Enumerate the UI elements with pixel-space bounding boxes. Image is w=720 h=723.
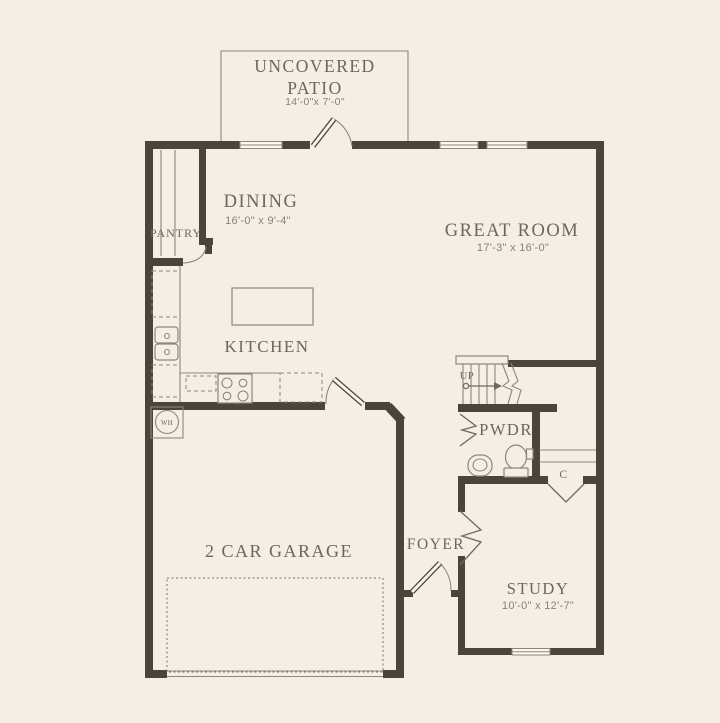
stove: [218, 374, 252, 403]
closet-shelves: [539, 450, 596, 462]
pantry-shelves: [161, 150, 175, 256]
pantry-door: [183, 247, 206, 263]
upper-cabinet: [186, 376, 216, 391]
water-heater-label: WH: [161, 420, 173, 427]
upper-cabinet: [152, 271, 180, 317]
patio-door: [313, 119, 352, 146]
refrigerator-space: [280, 373, 322, 402]
foyer-label: FOYER: [407, 536, 465, 553]
study-label: STUDY: [507, 579, 570, 598]
floor-plan: WH UNCOVERED PATIO 14'-0"x 7'-0" DINING …: [0, 0, 720, 723]
pantry-label: PANTRY: [150, 226, 202, 240]
kitchen-garage-door: [326, 379, 363, 404]
great-room-label: GREAT ROOM: [445, 221, 579, 241]
front-entry-door: [412, 563, 451, 592]
stair-handrail: [456, 356, 508, 364]
powder-sink: [468, 455, 492, 476]
great-room-dimensions: 17'-3" x 16'-0": [477, 242, 549, 254]
dining-window: [240, 142, 282, 149]
great-room-window-left: [440, 142, 478, 149]
study-window: [512, 649, 550, 656]
powder-room-opening-symbol: [460, 414, 476, 446]
closet-bifold-door: [548, 484, 584, 502]
dining-label: DINING: [224, 192, 299, 212]
toilet: [504, 445, 533, 477]
stair-break-line: [502, 363, 521, 404]
powder-room-label: PWDR: [479, 420, 533, 439]
stair-direction-arrow: [463, 382, 502, 390]
garage-door-clearance: [167, 578, 383, 672]
closet-label: C: [559, 469, 568, 481]
floor-plan-drawing: WH UNCOVERED PATIO 14'-0"x 7'-0" DINING …: [0, 0, 720, 723]
kitchen-fixtures: [152, 266, 322, 403]
labels: UNCOVERED PATIO 14'-0"x 7'-0" DINING 16'…: [150, 56, 579, 612]
dining-dimensions: 16'-0" x 9'-4": [225, 215, 291, 227]
patio-dimensions: 14'-0"x 7'-0": [285, 96, 345, 108]
kitchen-island: [232, 288, 313, 325]
kitchen-sink: [155, 327, 178, 360]
upper-cabinet: [152, 365, 180, 397]
garage-label: 2 CAR GARAGE: [205, 541, 353, 561]
water-heater: WH: [151, 407, 183, 438]
kitchen-label: KITCHEN: [224, 337, 309, 356]
interior-walls: [145, 148, 604, 484]
powder-room-fixtures: [468, 445, 533, 477]
study-dimensions: 10'-0" x 12'-7": [502, 600, 574, 612]
great-room-window-right: [487, 142, 527, 149]
patio-label-line1: UNCOVERED: [254, 56, 375, 76]
stairs-up-label: UP: [460, 371, 474, 382]
garage-door-opening: [167, 578, 383, 677]
patio-label-line2: PATIO: [287, 78, 342, 98]
